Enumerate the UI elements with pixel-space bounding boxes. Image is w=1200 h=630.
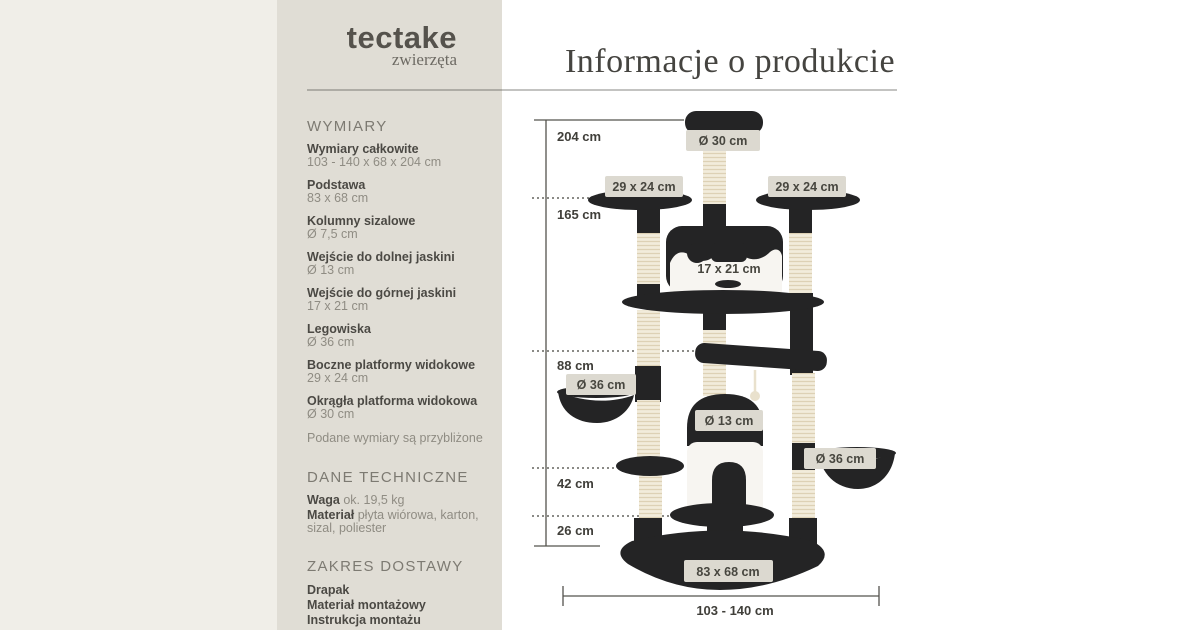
upper-cave [666, 226, 783, 292]
spec-entry: Wejście do górnej jaskini 17 x 21 cm [307, 287, 492, 313]
brand-logo: tectake zwierzęta [307, 0, 457, 83]
header-divider [307, 89, 897, 91]
section-heading-supply: ZAKRES DOSTAWY [307, 558, 492, 576]
height-label-42: 42 cm [557, 476, 594, 491]
left-margin-strip [0, 0, 277, 630]
spec-entry: Wymiary całkowite 103 - 140 x 68 x 204 c… [307, 143, 492, 169]
product-info-card: tectake zwierzęta WYMIARY Wymiary całkow… [0, 0, 1200, 630]
spec-entry: Okrągła platforma widokowa Ø 30 cm [307, 395, 492, 421]
dimensions-note: Podane wymiary są przybliżone [307, 431, 492, 445]
upper-cave-window [711, 243, 747, 262]
toy-ball [750, 391, 760, 401]
spec-entry: Boczne platformy widokowe 29 x 24 cm [307, 359, 492, 385]
product-dimension-diagram: 204 cm 165 cm 88 cm 42 cm 26 cm 103 - 14… [515, 95, 940, 630]
page-title: Informacje o produkcie [502, 43, 958, 81]
tech-label: Waga [307, 493, 340, 507]
tech-entry-material: Materiał płyta wiórowa, karton, sizal, p… [307, 509, 492, 536]
left-mid-platform [616, 456, 684, 476]
label-left-platform: 29 x 24 cm [612, 180, 675, 194]
supply-item: Drapak [307, 583, 492, 598]
supply-item: Materiał montażowy [307, 598, 492, 613]
width-range-label: 103 - 140 cm [696, 603, 773, 618]
label-right-bed: Ø 36 cm [816, 452, 865, 466]
label-top-platform: Ø 30 cm [699, 134, 748, 148]
label-lower-cave-entry: Ø 13 cm [705, 414, 754, 428]
tech-value: ok. 19,5 kg [343, 493, 404, 507]
supply-item: Instrukcja montażu [307, 613, 492, 628]
height-label-26: 26 cm [557, 523, 594, 538]
section-heading-dimensions: WYMIARY [307, 118, 492, 136]
spec-entry: Kolumny sizalowe Ø 7,5 cm [307, 215, 492, 241]
brand-name: tectake [307, 25, 457, 51]
label-upper-cave-entry: 17 x 21 cm [697, 262, 760, 276]
section-heading-technical: DANE TECHNICZNE [307, 469, 492, 487]
height-label-total: 204 cm [557, 129, 601, 144]
spec-entry: Podstawa 83 x 68 cm [307, 179, 492, 205]
label-base: 83 x 68 cm [696, 565, 759, 579]
middle-platform [622, 290, 824, 314]
spec-entry: Legowiska Ø 36 cm [307, 323, 492, 349]
upper-cave-side-hole [687, 243, 707, 263]
height-label-88: 88 cm [557, 358, 594, 373]
tech-entry-weight: Waga ok. 19,5 kg [307, 494, 492, 508]
spec-sidebar: tectake zwierzęta WYMIARY Wymiary całkow… [277, 0, 502, 630]
spec-entry: Wejście do dolnej jaskini Ø 13 cm [307, 251, 492, 277]
label-left-bed: Ø 36 cm [577, 378, 626, 392]
label-right-platform: 29 x 24 cm [775, 180, 838, 194]
height-label-165: 165 cm [557, 207, 601, 222]
tech-label: Materiał [307, 508, 354, 522]
